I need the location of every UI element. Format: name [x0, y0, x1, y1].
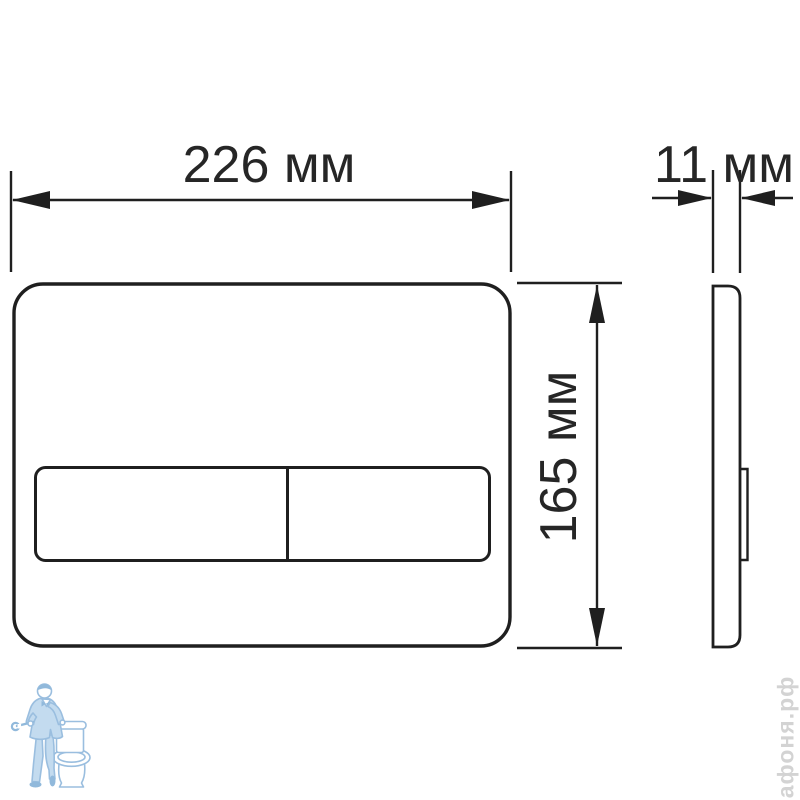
height-arrow-bottom: [589, 608, 605, 646]
plumber-hand-right: [60, 720, 65, 725]
height-dimension-label: 165 мм: [533, 371, 585, 544]
width-dimension-label: 226 мм: [183, 139, 356, 191]
plumber-illustration: [12, 684, 65, 788]
plate-outline: [14, 284, 510, 646]
plumber-leg-crossed: [45, 735, 55, 779]
side-view: [713, 286, 748, 647]
side-profile: [713, 286, 740, 647]
watermark-site-label: афоня.рф: [773, 676, 800, 799]
technical-drawing: 226 мм 11 мм 165 мм афоня.рф: [0, 0, 800, 800]
drawing-svg: [0, 0, 800, 800]
wrench-jaw-gap: [18, 724, 22, 729]
buttons-outline: [36, 468, 490, 561]
watermark-logo: [12, 684, 90, 788]
plumber-shoe-right: [50, 776, 56, 787]
depth-dimension-label: 11 мм: [654, 139, 794, 191]
plumber-hand-left: [28, 721, 33, 726]
width-arrow-right: [472, 191, 510, 209]
plumber-shoe-left: [30, 782, 42, 788]
front-view: [14, 284, 510, 646]
height-arrow-top: [589, 285, 605, 323]
width-arrow-left: [12, 191, 50, 209]
plumber-leg-standing: [32, 735, 43, 782]
